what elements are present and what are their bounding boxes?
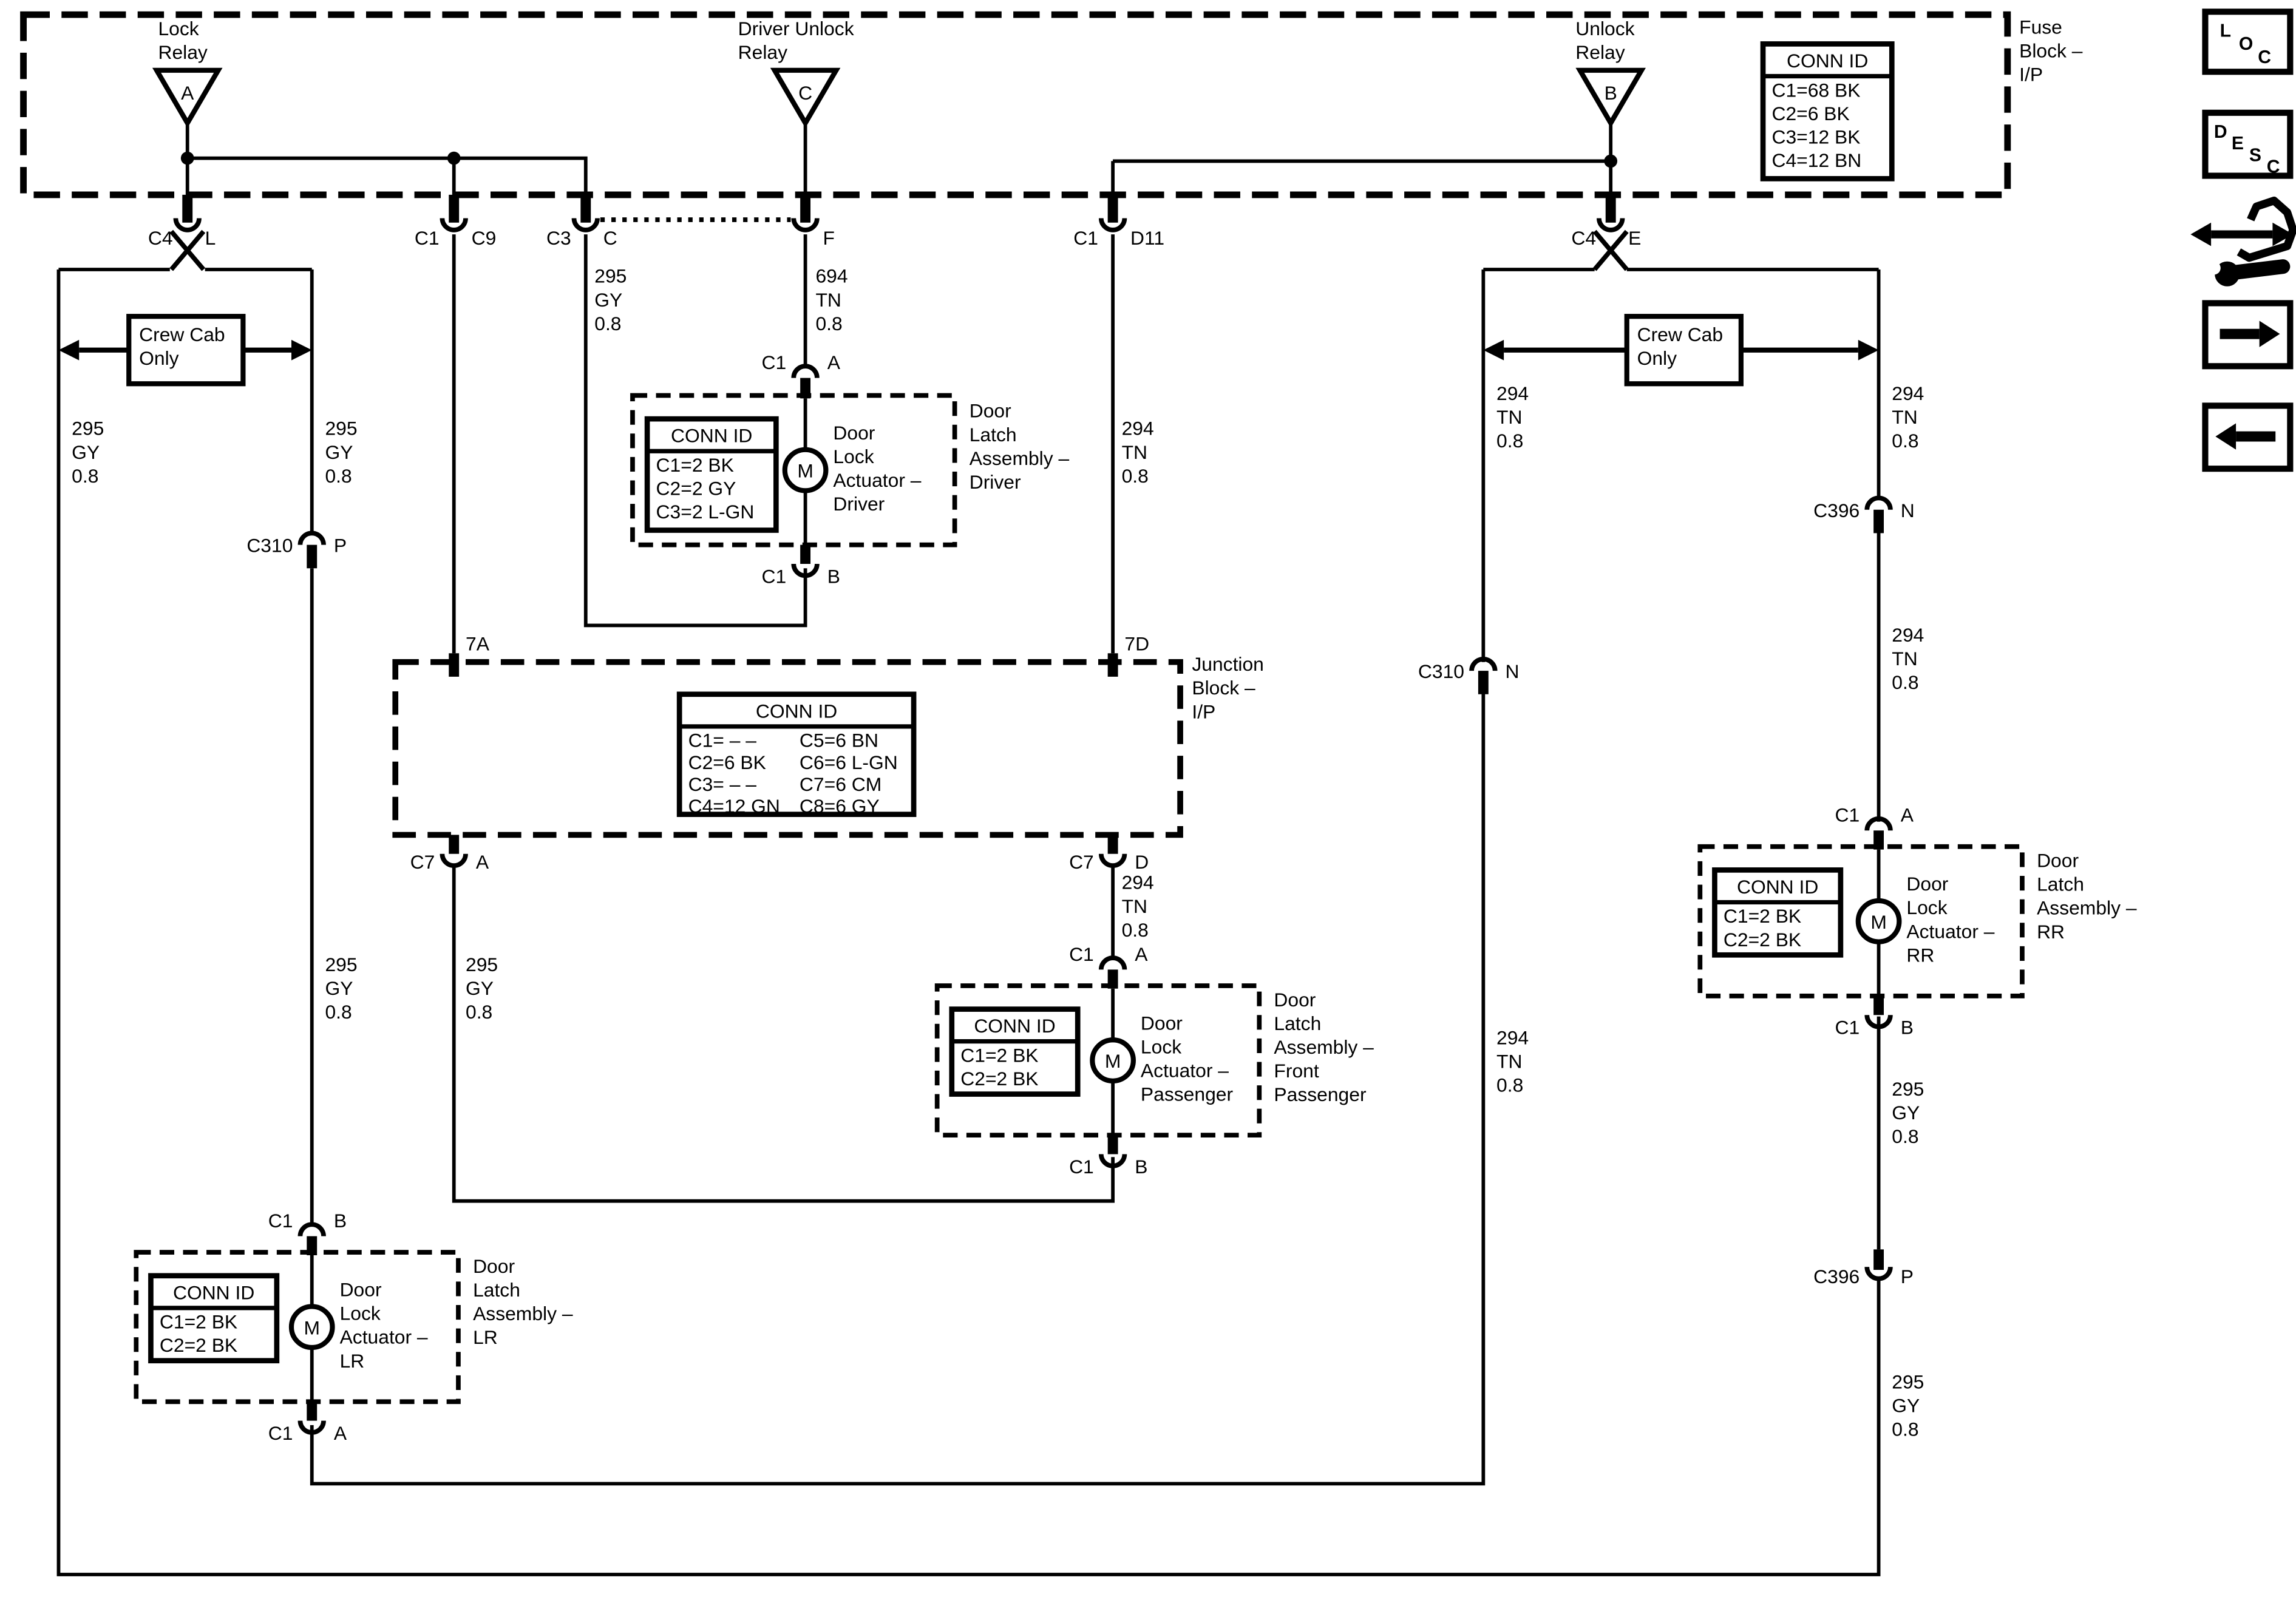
connector-arc — [300, 1224, 324, 1236]
connector-name: C310 — [246, 535, 293, 557]
wire-label: 295GY0.8 — [1892, 1371, 1924, 1440]
driver-unlock-relay-label: Driver UnlockRelay — [738, 18, 854, 63]
wire-label: 294TN0.8 — [1122, 418, 1154, 487]
conn-id-row: C2=6 BK — [688, 751, 766, 773]
conn-id-row: C2=6 BK — [1772, 103, 1850, 124]
wires — [58, 123, 1878, 1575]
desc-button[interactable]: D E S C — [2205, 113, 2290, 177]
wire-label: 694TN0.8 — [815, 265, 847, 334]
connector-pin: C — [603, 227, 617, 249]
connector-name: C1 — [1835, 1017, 1860, 1039]
loc-letter: L — [2220, 21, 2231, 41]
conn-id-title: CONN ID — [1787, 50, 1868, 72]
connector-pin: N — [1506, 660, 1520, 682]
connector-name: C310 — [1418, 660, 1464, 682]
door-lock-actuator-front-passenger: C1 A CONN ID C1=2 BK C2=2 BK M DoorLockA… — [937, 943, 1374, 1178]
connector-arc — [1867, 498, 1890, 509]
rr-conn-id: CONN ID C1=2 BK C2=2 BK — [1714, 870, 1840, 955]
conn-id-row: C1=2 BK — [160, 1311, 237, 1333]
desc-letter: C — [2267, 157, 2280, 177]
connector-pin: B — [1901, 1017, 1914, 1039]
conn-id-row: C6=6 L-GN — [800, 751, 898, 773]
connector-name: C1 — [762, 351, 787, 373]
wire-label: 295GY0.8 — [72, 418, 104, 487]
splice-x-c4l — [171, 231, 203, 269]
connector-arc — [1101, 854, 1125, 866]
junction-block-label: JunctionBlock –I/P — [1192, 653, 1264, 722]
lr-conn-id: CONN ID C1=2 BK C2=2 BK — [151, 1276, 276, 1361]
door-lock-actuator-lr: C1 B CONN ID C1=2 BK C2=2 BK M DoorLockA… — [136, 1210, 573, 1444]
wiring-diagram-page: FuseBlock –I/P LockRelay A Driver Unlock… — [0, 0, 2296, 1617]
wire-label: 295GY0.8 — [1892, 1078, 1924, 1147]
connector-pin: A — [476, 851, 489, 873]
door-lock-actuator-rr: C1 A CONN ID C1=2 BK C2=2 BK M DoorLockA… — [1700, 804, 2137, 1039]
lock-relay: LockRelay A — [157, 18, 218, 123]
connector-name: C1 — [415, 227, 440, 249]
connector-name: C1 — [268, 1210, 293, 1232]
connector-pin: B — [1135, 1156, 1147, 1178]
unlock-relay-label: UnlockRelay — [1575, 18, 1634, 63]
harness-routing-tool-icon[interactable] — [2190, 201, 2293, 286]
connector-pin: P — [1901, 1266, 1914, 1287]
crew-cab-label: Crew CabOnly — [1637, 324, 1723, 369]
conn-id-row: C3=2 L-GN — [656, 501, 755, 523]
actuator-inner-label: DoorLockActuator –Passenger — [1141, 1012, 1234, 1105]
connector-c310-p: C310 P — [246, 533, 347, 568]
unlock-relay-pin: B — [1605, 82, 1617, 104]
connector-pin: A — [334, 1422, 347, 1444]
junction-conn-id: CONN ID C1= – – C2=6 BK C3= – – C4=12 GN… — [679, 694, 914, 817]
conn-id-row: C3= – – — [688, 773, 757, 795]
connector-pin: A — [1901, 804, 1914, 826]
crew-cab-label: Crew CabOnly — [139, 324, 225, 369]
actuator-outer-label: DoorLatchAssembly –RR — [2037, 850, 2137, 943]
connector-name: C1 — [1835, 804, 1860, 826]
junction-dot — [1604, 155, 1617, 168]
wire — [188, 158, 586, 195]
connector-name: C7 — [410, 851, 435, 873]
connector-pin: C9 — [472, 227, 497, 249]
right-arrowhead-icon — [1858, 340, 1879, 361]
conn-id-row: C2=2 GY — [656, 478, 736, 500]
back-arrow-button[interactable] — [2205, 405, 2290, 469]
motor-letter: M — [1870, 911, 1887, 933]
fuse-block-border — [24, 15, 2008, 195]
actuator-outer-label: DoorLatchAssembly –LR — [473, 1255, 573, 1348]
splice-x-icon — [171, 231, 203, 269]
connector-arc — [1867, 819, 1890, 830]
conn-id-row: C1=68 BK — [1772, 79, 1861, 101]
connector-name: C1 — [762, 565, 787, 587]
actuator-inner-label: DoorLockActuator –Driver — [833, 422, 921, 515]
junction-block-border — [395, 662, 1180, 835]
actuator-inner-label: DoorLockActuator –RR — [1906, 873, 1994, 966]
conn-id-row: C2=2 BK — [160, 1334, 237, 1356]
wire-label: 295GY0.8 — [466, 954, 498, 1023]
junction-dot — [447, 152, 461, 165]
connector-name: C1 — [1069, 943, 1094, 965]
connector-name: C4 — [148, 227, 173, 249]
double-arrow-left-head-icon — [2190, 223, 2211, 246]
connector-arc — [1472, 659, 1495, 671]
unlock-relay: UnlockRelay B — [1575, 18, 1642, 123]
connector-c310-n: C310 N — [1418, 659, 1520, 694]
desc-letter: E — [2232, 134, 2244, 154]
fuse-block: FuseBlock –I/P LockRelay A Driver Unlock… — [24, 15, 2083, 195]
wrench-icon — [2207, 262, 2283, 286]
connector-name: C1 — [1073, 227, 1098, 249]
conn-id-row: C1=2 BK — [656, 454, 734, 476]
conn-id-title: CONN ID — [173, 1281, 254, 1303]
connector-name: C396 — [1813, 1266, 1860, 1287]
conn-id-row: C1= – – — [688, 730, 757, 751]
motor-letter: M — [797, 460, 813, 482]
conn-id-row: C4=12 BN — [1772, 149, 1862, 171]
wire-label: 295GY0.8 — [325, 418, 357, 487]
conn-id-title: CONN ID — [1737, 876, 1818, 898]
right-arrowhead-icon — [291, 340, 312, 361]
conn-id-row: C5=6 BN — [800, 730, 878, 751]
conn-id-title: CONN ID — [671, 425, 752, 447]
conn-id-row: C1=2 BK — [960, 1044, 1038, 1066]
connector-name: C396 — [1813, 500, 1860, 521]
splice-x-icon — [1595, 231, 1627, 269]
connector-name: C1 — [268, 1422, 293, 1444]
conn-id-row: C7=6 CM — [800, 773, 881, 795]
door-lock-actuator-driver: C1 A CONN ID C1=2 BK C2=2 GY C3=2 L-GN M… — [633, 351, 1070, 587]
driver-conn-id: CONN ID C1=2 BK C2=2 GY C3=2 L-GN — [647, 419, 776, 530]
junction-entry-pin: 7A — [466, 632, 490, 654]
front-passenger-conn-id: CONN ID C1=2 BK C2=2 BK — [952, 1009, 1078, 1094]
forward-arrow-button[interactable] — [2205, 303, 2290, 367]
connector-pin: P — [334, 535, 347, 557]
driver-unlock-relay: Driver UnlockRelay C — [738, 18, 854, 123]
conn-id-row: C3=12 BK — [1772, 126, 1861, 147]
desc-letter: D — [2214, 122, 2227, 142]
conn-id-row: C2=2 BK — [1724, 929, 1801, 951]
connector-name: C4 — [1571, 227, 1596, 249]
connector-pin: B — [334, 1210, 347, 1232]
connector-arc — [442, 854, 466, 866]
wire-label: 294TN0.8 — [1122, 872, 1154, 941]
wrench-jaw-notch — [2207, 262, 2221, 275]
desc-letter: S — [2249, 145, 2261, 165]
motor-letter: M — [1105, 1050, 1121, 1072]
connector-pin: E — [1628, 227, 1641, 249]
connector-pin: L — [205, 227, 216, 249]
connector-pin: A — [1135, 943, 1148, 965]
connector-c396-p: C396 P — [1813, 1249, 1914, 1287]
harness-outline-icon — [2239, 201, 2293, 258]
crew-cab-only-left: Crew CabOnly — [58, 316, 311, 384]
fuse-exit-connectors: C4 L C1 C9 C3 C F C1 D11 C4 E — [148, 195, 1641, 269]
wire-label: 294TN0.8 — [1496, 382, 1529, 452]
conn-id-row: C4=12 GN — [688, 795, 780, 817]
wire-label: 295GY0.8 — [325, 954, 357, 1023]
motor-letter: M — [304, 1317, 320, 1338]
wrench-handle — [2235, 266, 2283, 273]
actuator-outer-label: DoorLatchAssembly –FrontPassenger — [1274, 989, 1374, 1105]
actuator-inner-label: DoorLockActuator –LR — [340, 1279, 428, 1372]
conn-id-title: CONN ID — [756, 700, 837, 722]
crew-cab-only-right: Crew CabOnly — [1483, 316, 1878, 384]
wire-label: 295GY0.8 — [594, 265, 627, 334]
connector-arc — [793, 366, 817, 378]
wiring-diagram-canvas: FuseBlock –I/P LockRelay A Driver Unlock… — [0, 0, 2296, 1617]
junction-block: JunctionBlock –I/P 7A 7D CONN ID C1= – –… — [395, 632, 1264, 873]
connector-pin: N — [1901, 500, 1915, 521]
connector-pin: A — [827, 351, 841, 373]
connector-arc — [300, 533, 324, 544]
conn-id-row: C8=6 GY — [800, 795, 880, 817]
wire-label: 294TN0.8 — [1892, 624, 1924, 693]
splice-x-c4e — [1595, 231, 1627, 269]
wire-label: 294TN0.8 — [1892, 382, 1924, 452]
fuse-block-conn-id: CONN ID C1=68 BK C2=6 BK C3=12 BK C4=12 … — [1763, 44, 1892, 178]
connector-arc — [1101, 958, 1125, 969]
left-arrowhead-icon — [1483, 340, 1504, 361]
loc-letter: C — [2258, 47, 2271, 67]
connector-pin: B — [827, 565, 840, 587]
junction-entry-pin: 7D — [1124, 632, 1149, 654]
actuator-outer-label: DoorLatchAssembly –Driver — [970, 400, 1070, 493]
junction-dot — [181, 152, 194, 165]
conn-id-title: CONN ID — [974, 1015, 1055, 1037]
connector-name: C3 — [546, 227, 571, 249]
loc-button[interactable]: L O C — [2205, 12, 2290, 72]
wire-label: 294TN0.8 — [1496, 1026, 1529, 1096]
left-arrowhead-icon — [58, 340, 79, 361]
side-toolbar: L O C D E S C — [2190, 12, 2293, 469]
lock-relay-label: LockRelay — [158, 18, 207, 63]
connector-pin: D11 — [1130, 227, 1164, 249]
conn-id-row: C2=2 BK — [960, 1068, 1038, 1090]
conn-id-row: C1=2 BK — [1724, 905, 1801, 927]
connector-name: C1 — [1069, 1156, 1094, 1178]
lock-relay-pin: A — [181, 82, 194, 104]
connector-pin: F — [823, 227, 835, 249]
loc-letter: O — [2239, 34, 2253, 54]
connector-name: C7 — [1069, 851, 1094, 873]
connector-pin: D — [1135, 851, 1149, 873]
connector-c396-n: C396 N — [1813, 498, 1915, 533]
fuse-block-label: FuseBlock –I/P — [2019, 16, 2083, 85]
driver-unlock-relay-pin: C — [798, 82, 812, 104]
